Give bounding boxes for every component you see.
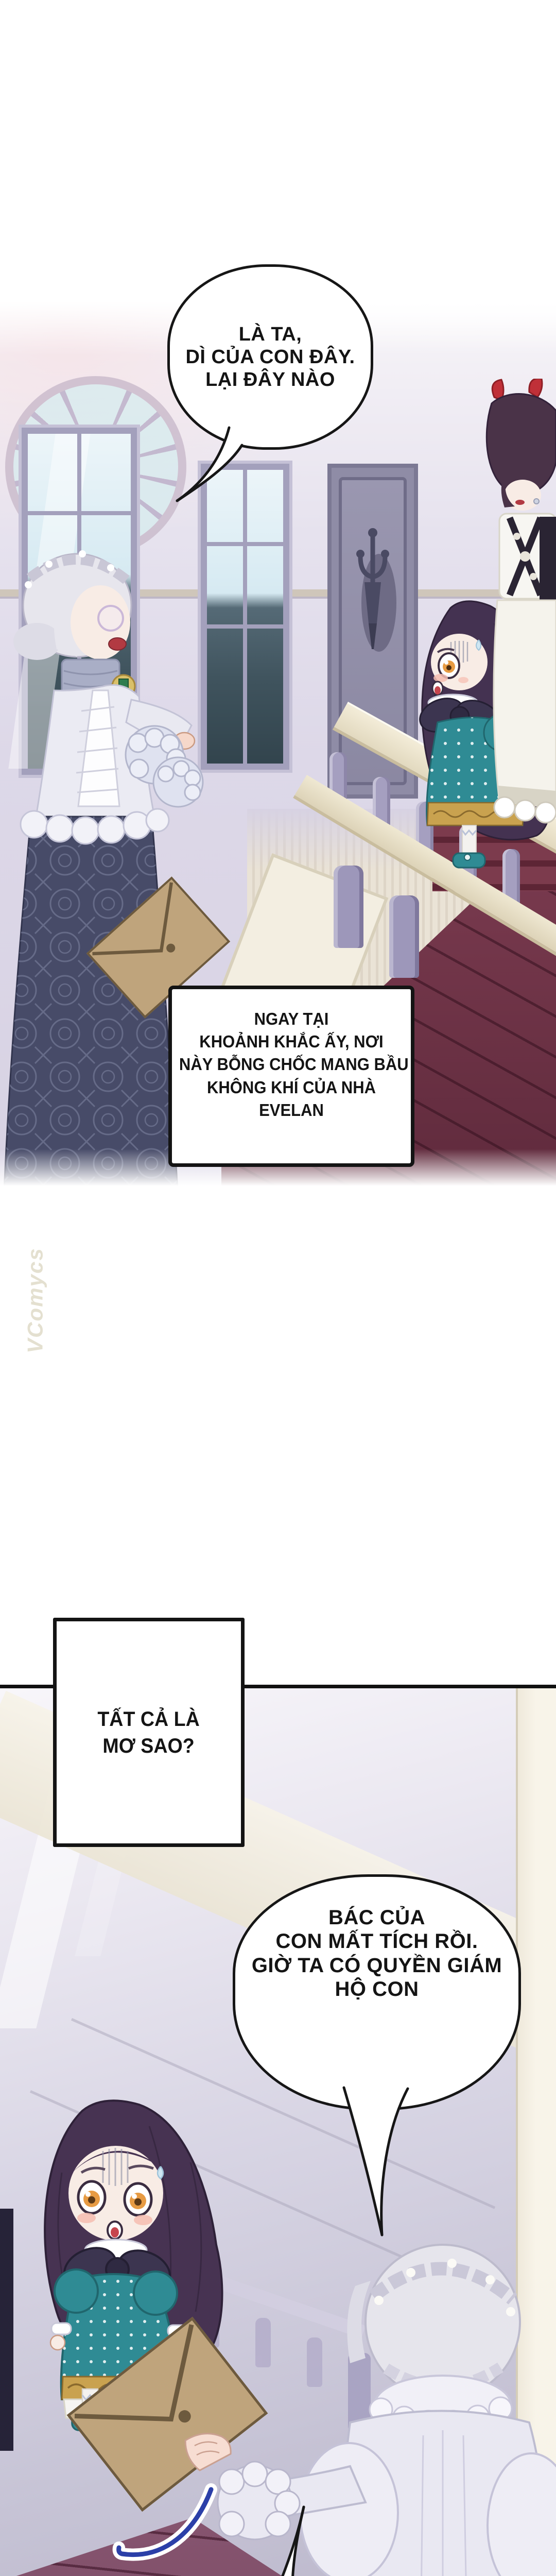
speech-bubble-tail — [329, 2081, 417, 2241]
narration-line: MƠ SAO? — [98, 1733, 200, 1759]
narration-line: TẤT CẢ LÀ — [98, 1706, 200, 1733]
newel-post — [389, 895, 419, 978]
speech-line: CON MẤT TÍCH RỒI. — [276, 1929, 478, 1953]
speech-line: BÁC CỦA — [328, 1906, 425, 1929]
dark-edge — [0, 2209, 13, 2451]
newel-post — [334, 866, 363, 948]
window-mullion — [207, 542, 283, 546]
speech-bubble-aunt-greeting: LÀ TA, DÌ CỦA CON ĐÂY. LẠI ĐÂY NÀO — [167, 264, 373, 450]
narration-line: KHÔNG KHÍ CỦA NHÀ — [179, 1076, 404, 1099]
speech-bubble-aunt-custody: BÁC CỦA CON MẤT TÍCH RỒI. GIỜ TA CÓ QUYỀ… — [233, 1874, 521, 2110]
narration-line: KHOẢNH KHẮC ẤY, NƠI — [179, 1030, 404, 1053]
comic-page: LÀ TA, DÌ CỦA CON ĐÂY. LẠI ĐÂY NÀO NGAY … — [0, 0, 556, 2576]
speech-line: DÌ CỦA CON ĐÂY. — [185, 346, 355, 368]
narration-line: NGAY TẠI — [179, 1008, 404, 1030]
speech-line: LÀ TA, — [239, 323, 302, 346]
speech-text: LÀ TA, DÌ CỦA CON ĐÂY. LẠI ĐÂY NÀO — [170, 267, 371, 447]
narration-box-moment: NGAY TẠI KHOẢNH KHẮC ẤY, NƠI NÀY BỖNG CH… — [168, 986, 414, 1167]
speech-line: HỘ CON — [335, 1977, 419, 2001]
narration-line: EVELAN — [179, 1099, 404, 1122]
baluster — [255, 2318, 271, 2367]
narration-box-dream: TẤT CẢ LÀ MƠ SAO? — [53, 1618, 245, 1847]
watermark-side: VComycs — [23, 1247, 48, 1353]
window-mullion — [28, 511, 131, 515]
narration-text: TẤT CẢ LÀ MƠ SAO? — [98, 1706, 200, 1759]
window-mullion — [243, 470, 247, 764]
speech-bubble-tail — [247, 2499, 335, 2576]
speech-bubble-tail — [170, 422, 257, 510]
narration-text: NGAY TẠI KHOẢNH KHẮC ẤY, NƠI NÀY BỖNG CH… — [179, 1008, 404, 1122]
narration-line: NÀY BỖNG CHỐC MANG BẦU — [179, 1053, 404, 1076]
speech-line: GIỜ TA CÓ QUYỀN GIÁM — [252, 1954, 502, 1977]
speech-line: LẠI ĐÂY NÀO — [205, 368, 335, 391]
wall-sconce-icon — [347, 526, 398, 659]
speech-text: BÁC CỦA CON MẤT TÍCH RỒI. GIỜ TA CÓ QUYỀ… — [235, 1877, 518, 2108]
character-horned-attendant — [479, 379, 556, 842]
window-mullion — [207, 624, 283, 629]
motion-swoosh — [111, 2482, 219, 2576]
